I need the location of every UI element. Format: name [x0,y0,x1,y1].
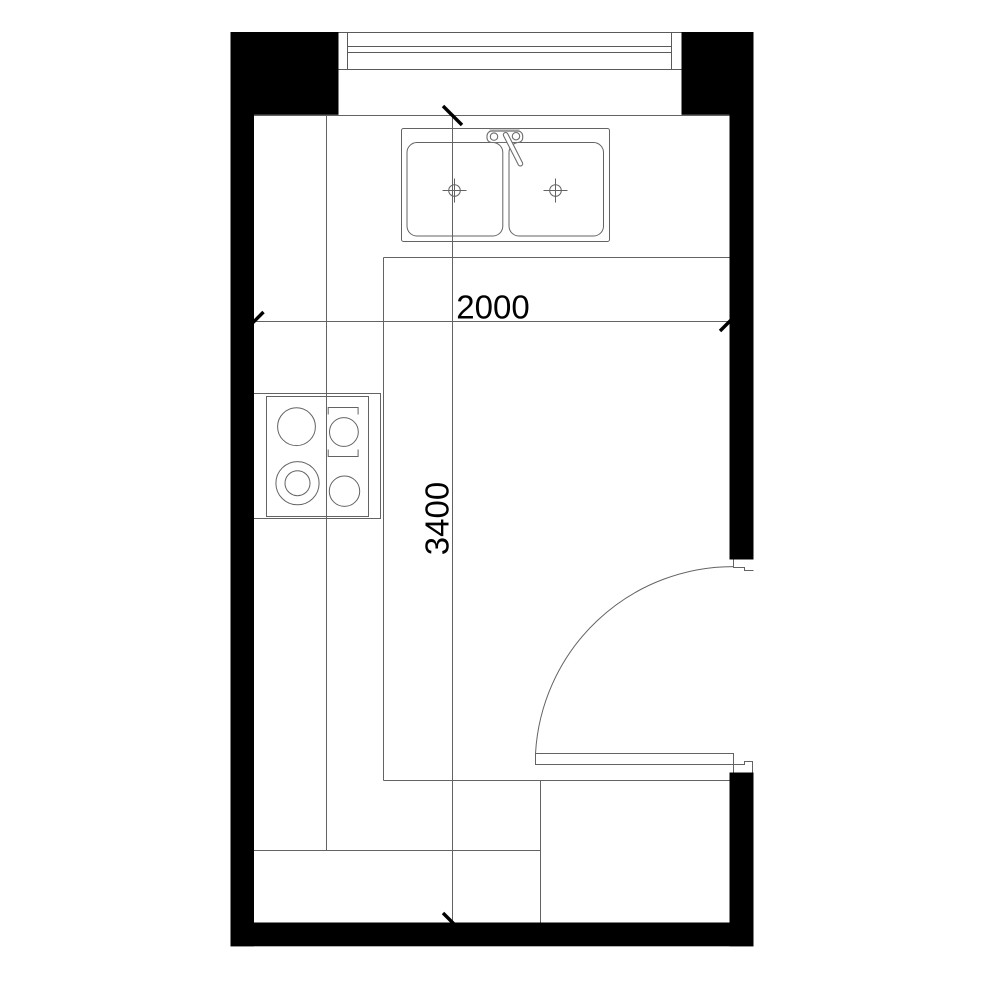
svg-text:3400: 3400 [419,482,456,555]
svg-text:2000: 2000 [456,289,529,326]
